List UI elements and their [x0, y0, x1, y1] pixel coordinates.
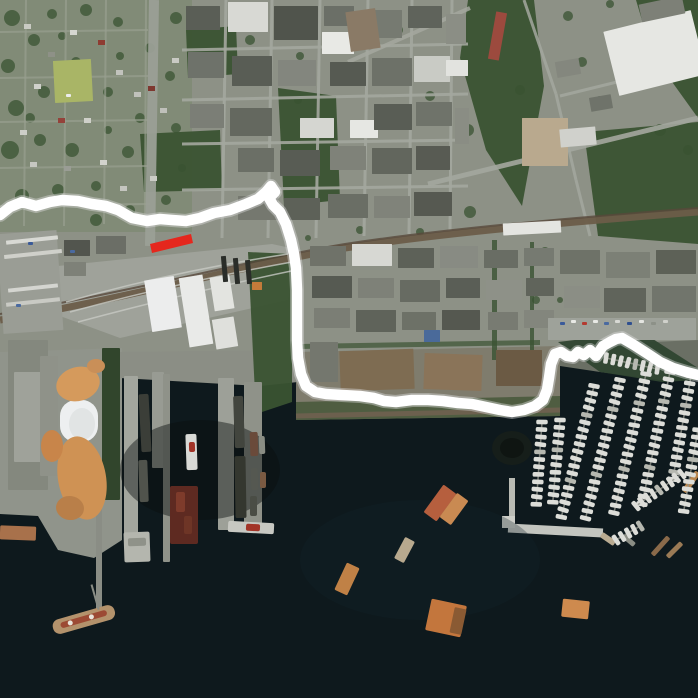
building — [423, 353, 482, 391]
ship — [189, 442, 195, 452]
tree — [80, 4, 92, 16]
house — [120, 186, 127, 191]
car — [604, 322, 609, 325]
car — [651, 322, 656, 325]
house — [30, 162, 37, 167]
tree — [165, 71, 175, 81]
car — [663, 320, 668, 323]
building — [186, 6, 220, 30]
house — [20, 130, 27, 135]
pier — [96, 500, 102, 616]
tree — [65, 143, 79, 157]
moored-boat — [533, 457, 545, 462]
car — [560, 322, 565, 325]
tree — [135, 113, 145, 123]
tree — [8, 100, 24, 116]
building — [526, 278, 554, 296]
building — [350, 120, 378, 138]
building — [190, 104, 224, 128]
building — [314, 308, 350, 328]
building — [656, 250, 696, 274]
building — [374, 196, 410, 218]
moored-boat — [536, 427, 548, 432]
building — [414, 56, 450, 82]
car — [615, 320, 620, 323]
building — [604, 288, 646, 312]
ship — [233, 396, 245, 448]
tree — [91, 181, 101, 191]
moored-boat — [534, 449, 546, 454]
car — [16, 304, 21, 307]
house — [150, 176, 157, 181]
building — [228, 2, 268, 32]
building — [278, 60, 316, 86]
building — [274, 6, 318, 40]
building — [455, 108, 469, 144]
building — [300, 118, 334, 138]
car — [28, 242, 33, 245]
building — [232, 56, 272, 86]
ship — [128, 538, 146, 547]
house — [24, 24, 31, 29]
car — [582, 322, 587, 325]
building — [564, 286, 600, 308]
road — [145, 0, 146, 224]
car — [627, 322, 632, 325]
tree — [171, 123, 181, 133]
building — [238, 148, 274, 172]
satellite-image — [0, 0, 698, 698]
woodchip-pile — [41, 430, 63, 462]
moored-boat — [553, 425, 565, 430]
building — [358, 278, 394, 298]
building — [408, 6, 442, 28]
ship — [184, 516, 192, 534]
house — [100, 160, 107, 165]
house — [48, 52, 55, 57]
house — [134, 92, 141, 97]
tree — [563, 11, 573, 21]
ship — [176, 492, 185, 512]
house — [58, 118, 65, 123]
moored-boat — [552, 447, 564, 452]
building — [64, 240, 90, 256]
moored-boat — [550, 470, 562, 475]
building — [440, 246, 478, 268]
building — [374, 104, 412, 130]
ship — [123, 532, 150, 563]
car — [70, 250, 75, 253]
building — [64, 262, 86, 276]
woodchip-pile — [87, 359, 105, 373]
tree — [34, 134, 46, 146]
building — [372, 148, 412, 174]
tree — [1, 141, 19, 159]
building — [398, 248, 434, 268]
ship — [250, 432, 259, 456]
barge — [561, 599, 590, 620]
building — [212, 316, 238, 349]
building — [280, 150, 320, 176]
building — [496, 350, 542, 386]
tree — [305, 235, 311, 241]
house — [148, 86, 155, 91]
tree — [178, 164, 186, 172]
building — [606, 252, 650, 278]
building — [345, 8, 380, 52]
ship — [260, 472, 266, 488]
car — [66, 94, 71, 97]
tree — [4, 10, 20, 26]
tree — [464, 206, 476, 218]
building — [310, 246, 346, 266]
building — [352, 244, 392, 266]
tree — [113, 17, 123, 27]
building — [402, 312, 436, 330]
ship — [259, 436, 266, 454]
house — [160, 108, 167, 113]
tree — [47, 9, 57, 19]
house — [34, 84, 41, 89]
tree — [296, 52, 304, 60]
house — [84, 118, 91, 123]
house — [70, 30, 77, 35]
tree — [606, 0, 614, 8]
building — [414, 192, 452, 216]
ship — [251, 468, 258, 490]
building — [416, 102, 452, 126]
building — [188, 52, 224, 78]
tree — [122, 146, 134, 158]
moored-boat — [536, 420, 548, 425]
road — [150, 0, 154, 246]
ship — [138, 460, 148, 502]
building — [446, 60, 468, 76]
building — [328, 194, 368, 218]
building — [330, 146, 366, 170]
tree-islet-core — [500, 438, 524, 458]
tree — [28, 34, 40, 46]
building — [442, 310, 480, 330]
building — [488, 312, 518, 330]
house — [64, 166, 71, 171]
ship — [234, 456, 246, 518]
tree — [161, 195, 171, 205]
building — [372, 58, 412, 86]
building — [356, 310, 396, 332]
building — [559, 126, 596, 147]
building — [484, 250, 518, 268]
tree — [532, 296, 540, 304]
ship — [246, 524, 260, 532]
building — [446, 278, 480, 298]
building — [560, 250, 600, 274]
tree — [170, 12, 182, 24]
house — [116, 70, 123, 75]
barge — [0, 525, 36, 540]
storage-dome-shading — [69, 408, 95, 440]
car — [571, 320, 576, 323]
tree — [245, 35, 255, 45]
building — [339, 349, 414, 392]
tree — [90, 214, 102, 226]
moored-boat — [554, 418, 566, 423]
building — [330, 62, 366, 86]
house — [98, 40, 105, 45]
map-canvas[interactable] — [0, 0, 698, 698]
building — [252, 282, 262, 290]
moored-boat — [547, 500, 559, 505]
building — [230, 108, 272, 136]
car — [639, 320, 644, 323]
moored-boat — [549, 477, 561, 482]
building — [96, 236, 126, 254]
building — [310, 342, 338, 382]
tree — [515, 85, 525, 95]
tree — [116, 52, 124, 60]
tree — [557, 297, 563, 303]
car — [593, 320, 598, 323]
ship — [250, 496, 257, 516]
building — [424, 330, 440, 342]
building — [53, 59, 93, 103]
building — [652, 286, 696, 312]
building — [312, 276, 352, 298]
water-sheen — [300, 500, 540, 620]
house — [172, 58, 179, 63]
building — [486, 280, 522, 300]
pier — [14, 372, 44, 462]
building — [0, 230, 63, 334]
tree — [1, 59, 15, 73]
building — [416, 146, 450, 170]
moored-boat — [530, 502, 542, 507]
building — [446, 14, 466, 44]
moored-boat — [532, 479, 544, 484]
building — [524, 248, 554, 266]
moored-boat — [533, 472, 545, 477]
tree — [683, 145, 693, 155]
building — [400, 280, 440, 302]
